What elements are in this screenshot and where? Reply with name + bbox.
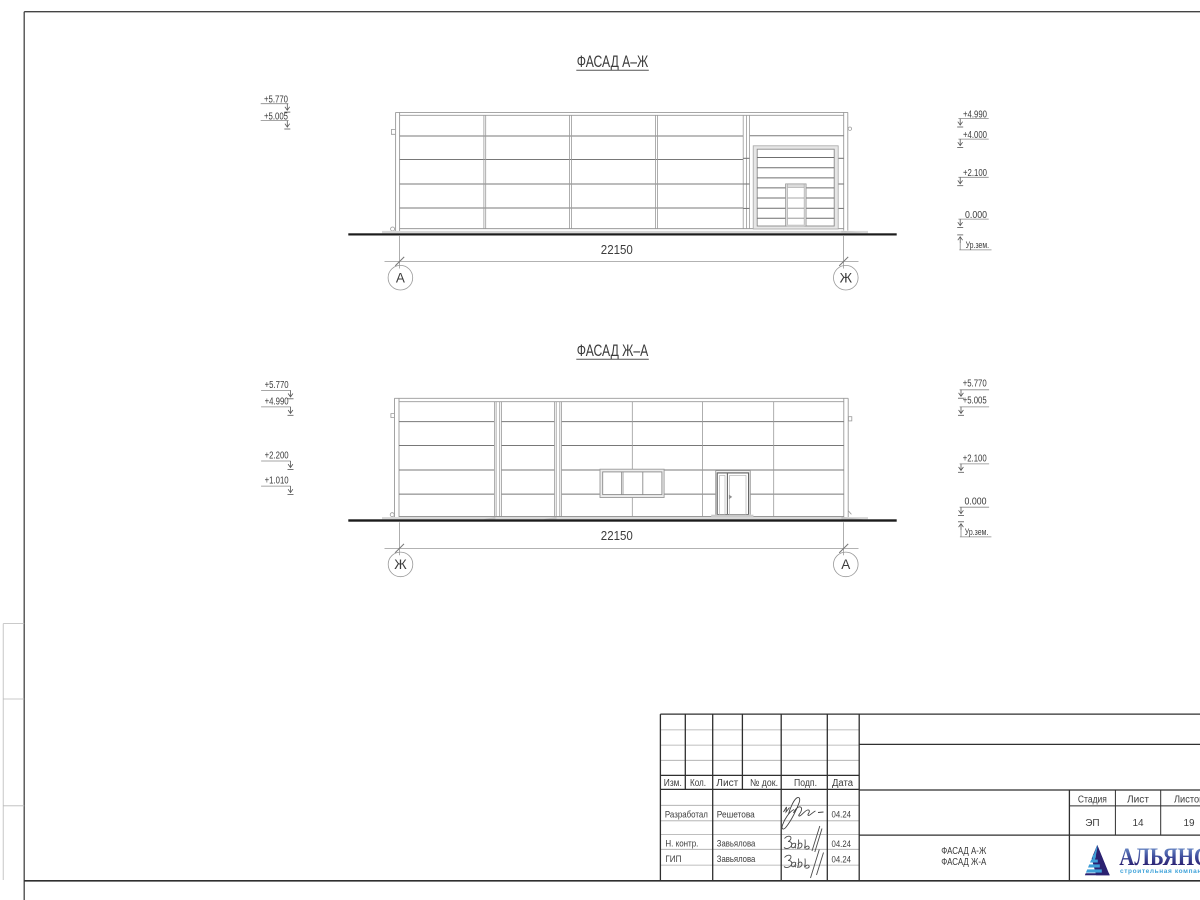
- svg-text:Завьялова: Завьялова: [717, 854, 756, 865]
- svg-text:Стадия: Стадия: [1078, 795, 1107, 806]
- svg-text:+2.100: +2.100: [963, 453, 987, 464]
- svg-text:А: А: [396, 271, 405, 286]
- svg-text:+2.200: +2.200: [265, 450, 289, 461]
- svg-text:Ж: Ж: [394, 557, 407, 572]
- svg-text:ЭП: ЭП: [1085, 818, 1099, 829]
- svg-text:22150: 22150: [601, 242, 633, 257]
- svg-text:Завьялова: Завьялова: [717, 838, 756, 849]
- svg-text:ФАСАД А-Ж: ФАСАД А-Ж: [941, 846, 986, 857]
- svg-text:+5.770: +5.770: [265, 380, 289, 391]
- svg-text:Разработал: Разработал: [665, 810, 708, 821]
- svg-text:Ж: Ж: [840, 271, 853, 286]
- svg-text:+5.005: +5.005: [963, 395, 987, 406]
- svg-text:Решетова: Решетова: [717, 810, 756, 821]
- svg-text:0.000: 0.000: [965, 497, 987, 508]
- svg-text:14: 14: [1132, 818, 1144, 829]
- svg-text:Н. контр.: Н. контр.: [665, 838, 698, 849]
- svg-text:Лист: Лист: [716, 778, 738, 789]
- svg-text:ФАСАД А–Ж: ФАСАД А–Ж: [577, 53, 649, 71]
- svg-text:АЛЬЯНС: АЛЬЯНС: [1119, 842, 1200, 871]
- svg-text:ФАСАД Ж–А: ФАСАД Ж–А: [577, 342, 649, 360]
- svg-text:Изм.: Изм.: [664, 778, 682, 789]
- svg-text:Лист: Лист: [1127, 795, 1149, 806]
- svg-text:Листов: Листов: [1174, 795, 1200, 806]
- svg-text:+1.010: +1.010: [265, 476, 289, 487]
- svg-text:+4.990: +4.990: [265, 397, 289, 408]
- svg-text:Подп.: Подп.: [794, 778, 817, 789]
- svg-text:Дата: Дата: [832, 778, 853, 789]
- svg-text:строительная компания: строительная компания: [1120, 868, 1200, 875]
- svg-text:№ док.: № док.: [750, 778, 778, 789]
- svg-text:Кол.: Кол.: [690, 778, 706, 789]
- svg-text:А: А: [841, 557, 850, 572]
- svg-text:+5.770: +5.770: [963, 378, 987, 389]
- svg-text:Ур.зем.: Ур.зем.: [966, 240, 990, 250]
- svg-text:04.24: 04.24: [832, 854, 852, 865]
- svg-text:ГИП: ГИП: [665, 854, 681, 865]
- svg-text:22150: 22150: [601, 528, 633, 543]
- svg-text:19: 19: [1183, 818, 1195, 829]
- svg-text:04.24: 04.24: [832, 839, 852, 850]
- svg-text:04.24: 04.24: [832, 810, 852, 821]
- svg-text:ФАСАД Ж-А: ФАСАД Ж-А: [941, 857, 986, 868]
- svg-text:Ур.зем.: Ур.зем.: [965, 527, 989, 537]
